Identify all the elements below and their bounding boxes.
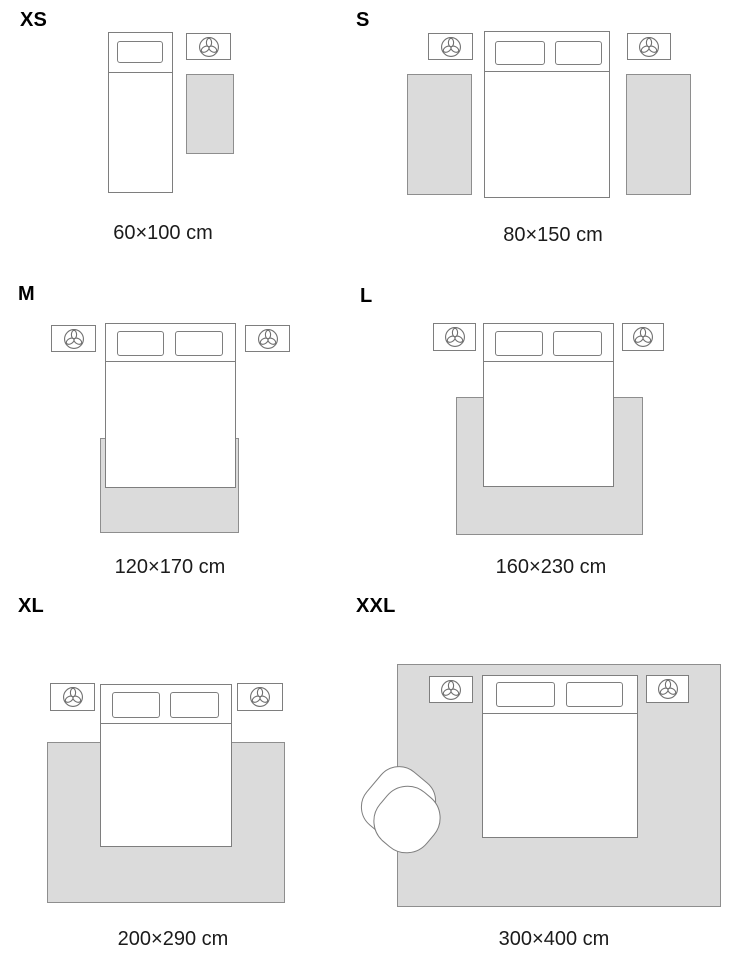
size-label-xl: XL (18, 596, 44, 616)
dimension-caption-xl: 200×290 cm (73, 928, 273, 950)
bed-headboard (484, 324, 613, 362)
plant-icon (657, 678, 679, 700)
plant-icon (632, 326, 654, 348)
nightstand (186, 33, 231, 60)
plant-icon (62, 686, 84, 708)
nightstand (433, 323, 476, 351)
plant-icon (198, 36, 220, 58)
pillow (170, 692, 219, 718)
rug-size-guide: XS 60×100 cm S (0, 0, 740, 960)
pillow (117, 331, 164, 356)
bed-headboard (109, 33, 172, 73)
nightstand (50, 683, 95, 711)
dimension-caption-xxl: 300×400 cm (454, 928, 654, 950)
plant-icon (440, 679, 462, 701)
plant-icon (63, 328, 85, 350)
dimension-caption-s: 80×150 cm (453, 224, 653, 246)
pillow (175, 331, 223, 356)
dimension-caption-l: 160×230 cm (451, 556, 651, 578)
double-bed (482, 675, 638, 838)
double-bed (100, 684, 232, 847)
pillow (496, 682, 555, 707)
size-label-m: M (18, 284, 35, 304)
pillow (566, 682, 623, 707)
rug-xs (186, 74, 234, 154)
bed-headboard (101, 685, 231, 724)
nightstand (627, 33, 671, 60)
double-bed (483, 323, 614, 487)
bed-headboard (485, 32, 609, 72)
size-label-s: S (356, 10, 370, 30)
size-label-xxl: XXL (356, 596, 396, 616)
pillow (553, 331, 602, 356)
rug-s-right (626, 74, 691, 195)
pillow (555, 41, 602, 65)
pillow (495, 41, 545, 65)
plant-icon (440, 36, 462, 58)
rug-s-left (407, 74, 472, 195)
double-bed (105, 323, 236, 488)
dimension-caption-xs: 60×100 cm (63, 222, 263, 244)
plant-icon (638, 36, 660, 58)
double-bed (484, 31, 610, 198)
size-label-xs: XS (20, 10, 47, 30)
nightstand (622, 323, 664, 351)
bed-headboard (483, 676, 637, 714)
plant-icon (249, 686, 271, 708)
nightstand (429, 676, 473, 703)
nightstand (646, 675, 689, 703)
nightstand (51, 325, 96, 352)
dimension-caption-m: 120×170 cm (70, 556, 270, 578)
bed-headboard (106, 324, 235, 362)
plant-icon (257, 328, 279, 350)
single-bed (108, 32, 173, 193)
size-label-l: L (360, 286, 372, 306)
nightstand (245, 325, 290, 352)
pillow (495, 331, 543, 356)
plant-icon (444, 326, 466, 348)
nightstand (428, 33, 473, 60)
pillow (112, 692, 160, 718)
nightstand (237, 683, 283, 711)
pillow (117, 41, 163, 63)
